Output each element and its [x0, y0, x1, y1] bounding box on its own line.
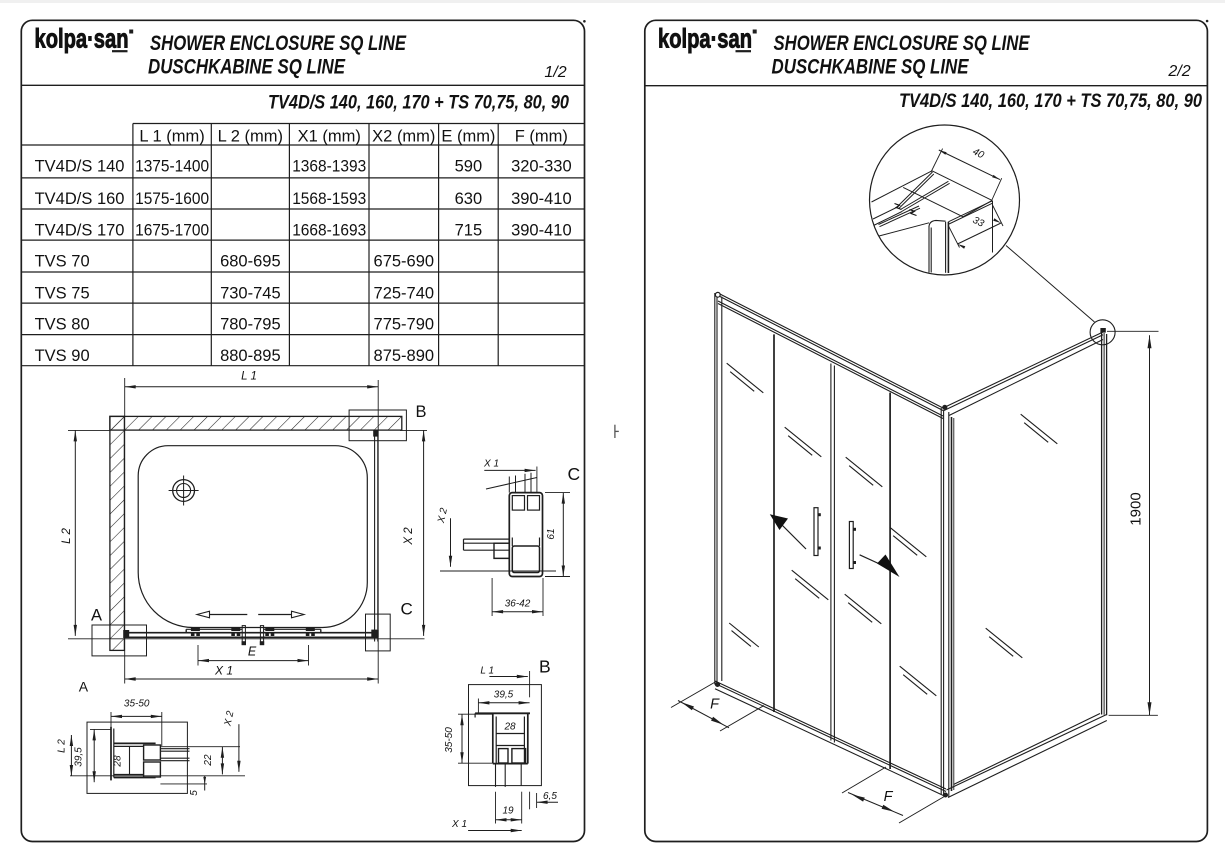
svg-text:F: F	[884, 789, 894, 805]
svg-text:1675-1700: 1675-1700	[135, 221, 209, 239]
svg-text:DUSCHKABINE SQ LINE: DUSCHKABINE SQ LINE	[148, 56, 346, 79]
svg-text:X 1: X 1	[214, 664, 233, 678]
svg-text:L 1: L 1	[480, 666, 494, 677]
svg-text:F (mm): F (mm)	[515, 128, 568, 146]
svg-text:TV4D/S 140, 160, 170 + TS 70,7: TV4D/S 140, 160, 170 + TS 70,75, 80, 90	[268, 93, 569, 114]
svg-text:39,5: 39,5	[494, 690, 514, 701]
svg-text:775-790: 775-790	[374, 315, 435, 333]
svg-text:L 1 (mm): L 1 (mm)	[139, 128, 204, 146]
svg-text:1575-1600: 1575-1600	[135, 190, 209, 208]
svg-text:35-50: 35-50	[444, 727, 455, 753]
svg-text:680-695: 680-695	[220, 252, 281, 270]
svg-text:390-410: 390-410	[511, 221, 572, 239]
svg-text:C: C	[401, 600, 413, 619]
svg-text:39,5: 39,5	[74, 747, 85, 767]
svg-text:TVS 75: TVS 75	[35, 284, 90, 302]
svg-text:DUSCHKABINE SQ LINE: DUSCHKABINE SQ LINE	[772, 56, 970, 79]
svg-text:X2 (mm): X2 (mm)	[372, 128, 435, 146]
svg-text:1368-1393: 1368-1393	[292, 157, 366, 175]
svg-text:1900: 1900	[1128, 492, 1145, 525]
svg-text:6,5: 6,5	[543, 791, 557, 802]
svg-text:L 2: L 2	[57, 739, 68, 753]
svg-text:1375-1400: 1375-1400	[135, 157, 209, 175]
svg-text:780-795: 780-795	[220, 315, 281, 333]
svg-text:L 2: L 2	[61, 528, 73, 544]
svg-text:22: 22	[203, 754, 214, 767]
svg-text:36-42: 36-42	[505, 599, 531, 610]
svg-text:TV4D/S 170: TV4D/S 170	[35, 221, 125, 239]
svg-text:730-745: 730-745	[220, 284, 281, 302]
svg-text:E (mm): E (mm)	[441, 128, 495, 146]
svg-text:320-330: 320-330	[511, 157, 572, 175]
svg-text:TVS 80: TVS 80	[35, 315, 90, 333]
svg-text:C: C	[568, 464, 581, 484]
svg-text:1/2: 1/2	[544, 64, 566, 81]
svg-text:1568-1593: 1568-1593	[292, 190, 366, 208]
svg-text:TV4D/S 160: TV4D/S 160	[35, 190, 125, 208]
svg-text:880-895: 880-895	[220, 347, 281, 365]
svg-text:28: 28	[113, 755, 124, 768]
svg-text:5: 5	[189, 790, 200, 796]
svg-text:2/2: 2/2	[1167, 63, 1190, 80]
svg-text:TVS 70: TVS 70	[35, 252, 90, 270]
svg-text:X 1: X 1	[483, 459, 499, 470]
svg-text:kolpa·san: kolpa·san	[658, 24, 752, 54]
svg-text:A: A	[79, 679, 89, 695]
svg-text:675-690: 675-690	[374, 252, 435, 270]
svg-text:TV4D/S 140, 160, 170 + TS 70,7: TV4D/S 140, 160, 170 + TS 70,75, 80, 90	[899, 91, 1202, 112]
svg-text:35-50: 35-50	[124, 699, 150, 710]
svg-text:X1 (mm): X1 (mm)	[298, 128, 361, 146]
svg-text:TVS 90: TVS 90	[35, 347, 90, 365]
svg-text:630: 630	[455, 190, 483, 208]
svg-text:19: 19	[502, 806, 514, 817]
svg-text:725-740: 725-740	[374, 284, 435, 302]
svg-text:1668-1693: 1668-1693	[292, 221, 366, 239]
svg-text:390-410: 390-410	[511, 190, 572, 208]
svg-text:590: 590	[455, 157, 483, 175]
svg-text:B: B	[539, 657, 551, 677]
svg-text:TV4D/S 140: TV4D/S 140	[35, 157, 125, 175]
svg-text:SHOWER ENCLOSURE SQ LINE: SHOWER ENCLOSURE SQ LINE	[150, 32, 407, 55]
svg-text:E: E	[248, 645, 257, 659]
svg-text:B: B	[416, 403, 427, 421]
svg-text:L 1: L 1	[241, 371, 257, 383]
svg-text:L 2 (mm): L 2 (mm)	[218, 128, 283, 146]
svg-text:X 2: X 2	[403, 527, 415, 546]
svg-text:A: A	[91, 607, 102, 625]
svg-text:28: 28	[503, 722, 516, 733]
svg-text:875-890: 875-890	[374, 347, 435, 365]
svg-text:X 1: X 1	[451, 819, 467, 830]
svg-text:715: 715	[455, 221, 483, 239]
svg-text:SHOWER ENCLOSURE SQ LINE: SHOWER ENCLOSURE SQ LINE	[774, 32, 1031, 55]
svg-text:61: 61	[546, 528, 557, 539]
svg-text:kolpa·san: kolpa·san	[35, 24, 129, 54]
svg-text:F: F	[710, 697, 720, 713]
